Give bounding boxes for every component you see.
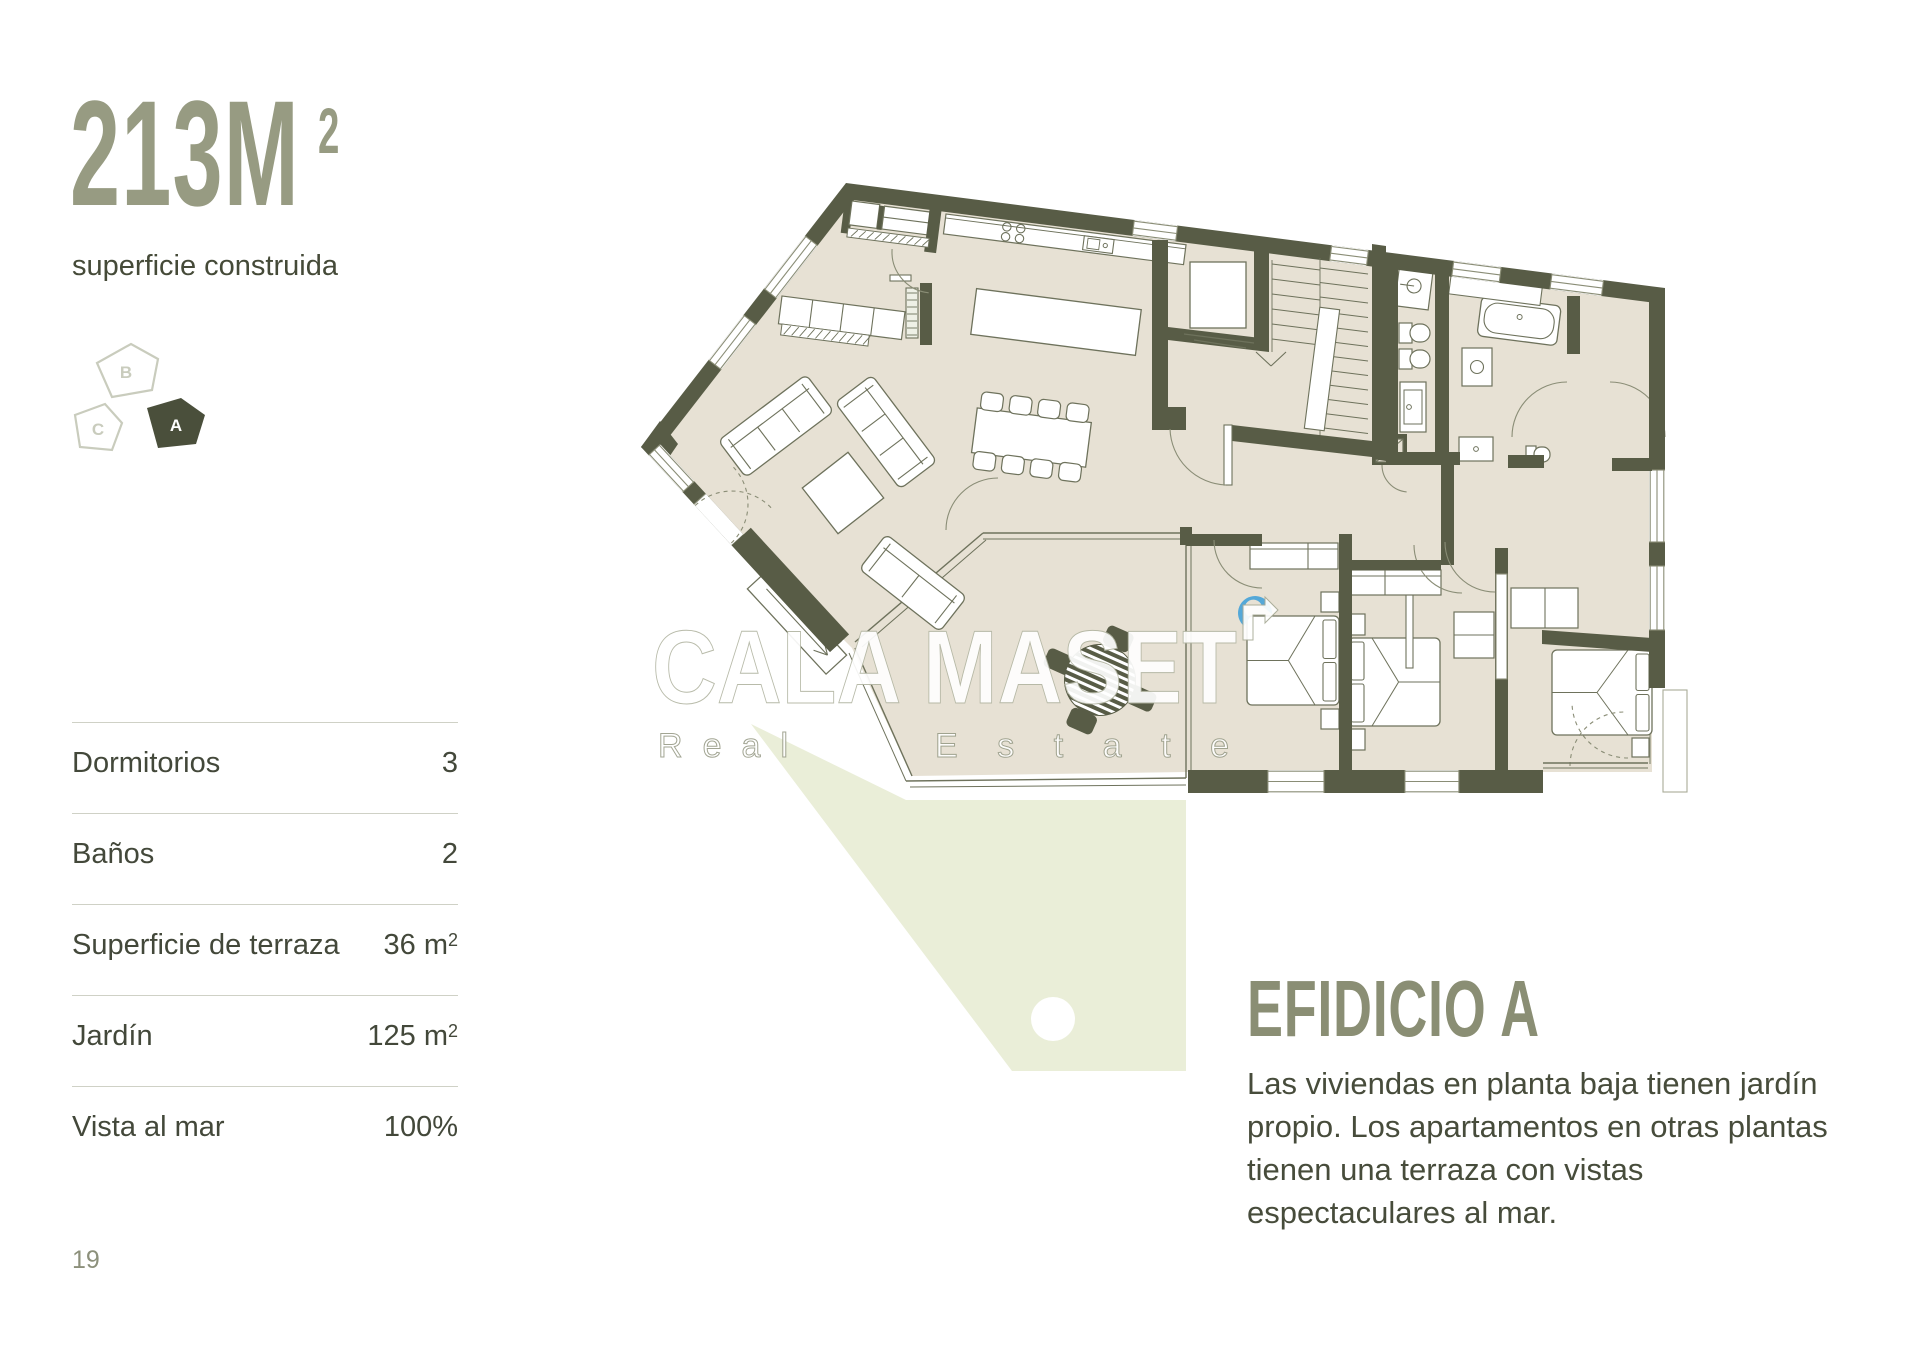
svg-text:A: A xyxy=(170,416,182,435)
svg-text:Real: Real xyxy=(658,727,812,765)
svg-text:CALA MASET: CALA MASET xyxy=(652,610,1237,726)
svg-text:C: C xyxy=(92,420,104,439)
svg-text:B: B xyxy=(120,363,132,382)
